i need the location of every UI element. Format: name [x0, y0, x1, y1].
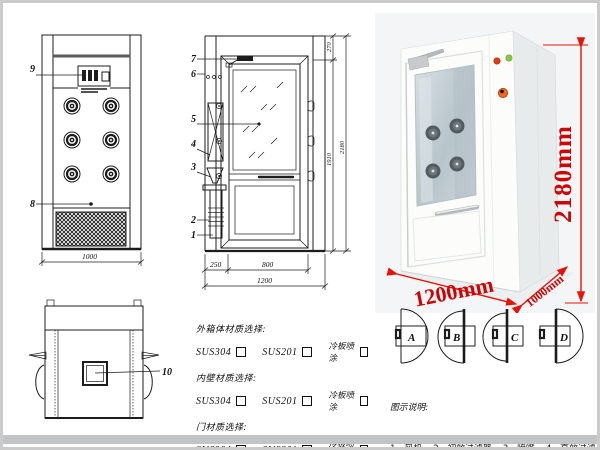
- option-label: SUS201: [262, 347, 297, 358]
- material-heading-outer: 外箱体材质选择:: [196, 322, 384, 335]
- checkbox[interactable]: [236, 347, 246, 357]
- svg-text:B: B: [452, 332, 460, 344]
- control-panel: [78, 66, 110, 92]
- green-indicator-icon: [506, 55, 512, 61]
- checkbox[interactable]: [302, 347, 312, 357]
- airshower-spec-sheet: 9 8 1000: [0, 0, 600, 450]
- hinge-icons: [216, 101, 314, 181]
- checkbox[interactable]: [360, 396, 368, 406]
- svg-text:1: 1: [191, 230, 196, 241]
- air-return-grille: [56, 212, 126, 246]
- option-label: SUS201: [262, 445, 297, 450]
- legend-title: 图示说明:: [390, 402, 596, 416]
- door-option-C: C: [483, 309, 523, 363]
- door-swing-options: A B C D: [388, 305, 593, 367]
- svg-text:6: 6: [191, 69, 196, 80]
- part-labels: 7 6 5 4 3 2 1: [190, 54, 261, 241]
- material-heading-inner: 内壁材质选择:: [196, 371, 384, 384]
- svg-text:1910: 1910: [326, 152, 333, 166]
- dim-height-label: 2180mm: [550, 125, 577, 223]
- dim-bottom: 250 800 1200: [202, 254, 328, 290]
- checkbox[interactable]: [302, 445, 312, 450]
- door-option-D: D: [540, 309, 583, 363]
- side-view-drawing: 7 6 5 4 3 2 1 250 800 1200: [183, 28, 358, 296]
- svg-text:800: 800: [262, 260, 274, 269]
- cabinet: [401, 31, 559, 292]
- svg-text:2: 2: [190, 215, 196, 226]
- svg-text:270: 270: [326, 42, 333, 53]
- glass-window: [233, 70, 296, 170]
- svg-text:1000: 1000: [82, 252, 97, 261]
- option-label: SUS304: [196, 445, 231, 450]
- option-label: SUS304: [196, 396, 231, 407]
- option-label: SUS304: [196, 347, 231, 358]
- svg-text:250: 250: [210, 260, 222, 269]
- ceiling-light: [83, 362, 107, 385]
- checkbox[interactable]: [236, 396, 246, 406]
- part-label-8: 8: [30, 199, 35, 210]
- dim-right: 270 1910 2180: [313, 34, 351, 254]
- svg-text:7: 7: [191, 54, 197, 65]
- nozzle-icons: [64, 98, 119, 182]
- part-label-10: 10: [162, 367, 172, 378]
- svg-text:5: 5: [191, 114, 196, 125]
- fan-stack: [203, 185, 226, 238]
- option-label: 冷板喷涂: [328, 389, 354, 413]
- bottom-divider: [3, 435, 597, 444]
- checkbox[interactable]: [360, 347, 368, 357]
- svg-text:1200: 1200: [257, 276, 272, 285]
- front-view-drawing: 9 8 1000: [28, 28, 183, 273]
- side-handles: [29, 352, 159, 399]
- part-label-9: 9: [30, 64, 35, 75]
- material-heading-door: 门材质选择:: [196, 420, 384, 433]
- option-label: SUS201: [262, 396, 297, 407]
- door-closer-icon: [226, 56, 253, 67]
- red-indicator-icon: [494, 58, 500, 64]
- svg-text:D: D: [559, 332, 568, 344]
- checkbox[interactable]: [302, 396, 312, 406]
- svg-text:2180: 2180: [339, 140, 346, 154]
- svg-text:3: 3: [190, 162, 196, 173]
- door: [216, 56, 314, 248]
- dim-1000: 1000: [39, 252, 144, 266]
- svg-text:4: 4: [190, 139, 196, 150]
- checkbox[interactable]: [236, 445, 246, 450]
- glass-hatch: [241, 82, 283, 158]
- material-options: 外箱体材质选择: SUS304 SUS201 冷板喷涂 内壁材质选择: SUS3…: [196, 319, 384, 450]
- material-row-inner: SUS304 SUS201 冷板喷涂: [196, 389, 384, 413]
- door-option-A: A: [396, 309, 428, 363]
- indicator-dots: [207, 76, 222, 79]
- top-view-drawing: 10: [28, 295, 203, 440]
- svg-text:C: C: [511, 332, 519, 344]
- product-photo: 2180mm 1200mm 1000mm: [375, 13, 595, 313]
- svg-text:A: A: [407, 332, 415, 344]
- option-label: 冷板喷涂: [328, 340, 354, 364]
- door-option-B: B: [438, 309, 475, 363]
- checkbox[interactable]: [360, 445, 368, 450]
- material-row-outer: SUS304 SUS201 冷板喷涂: [196, 340, 384, 364]
- emergency-button-icon: [498, 88, 507, 97]
